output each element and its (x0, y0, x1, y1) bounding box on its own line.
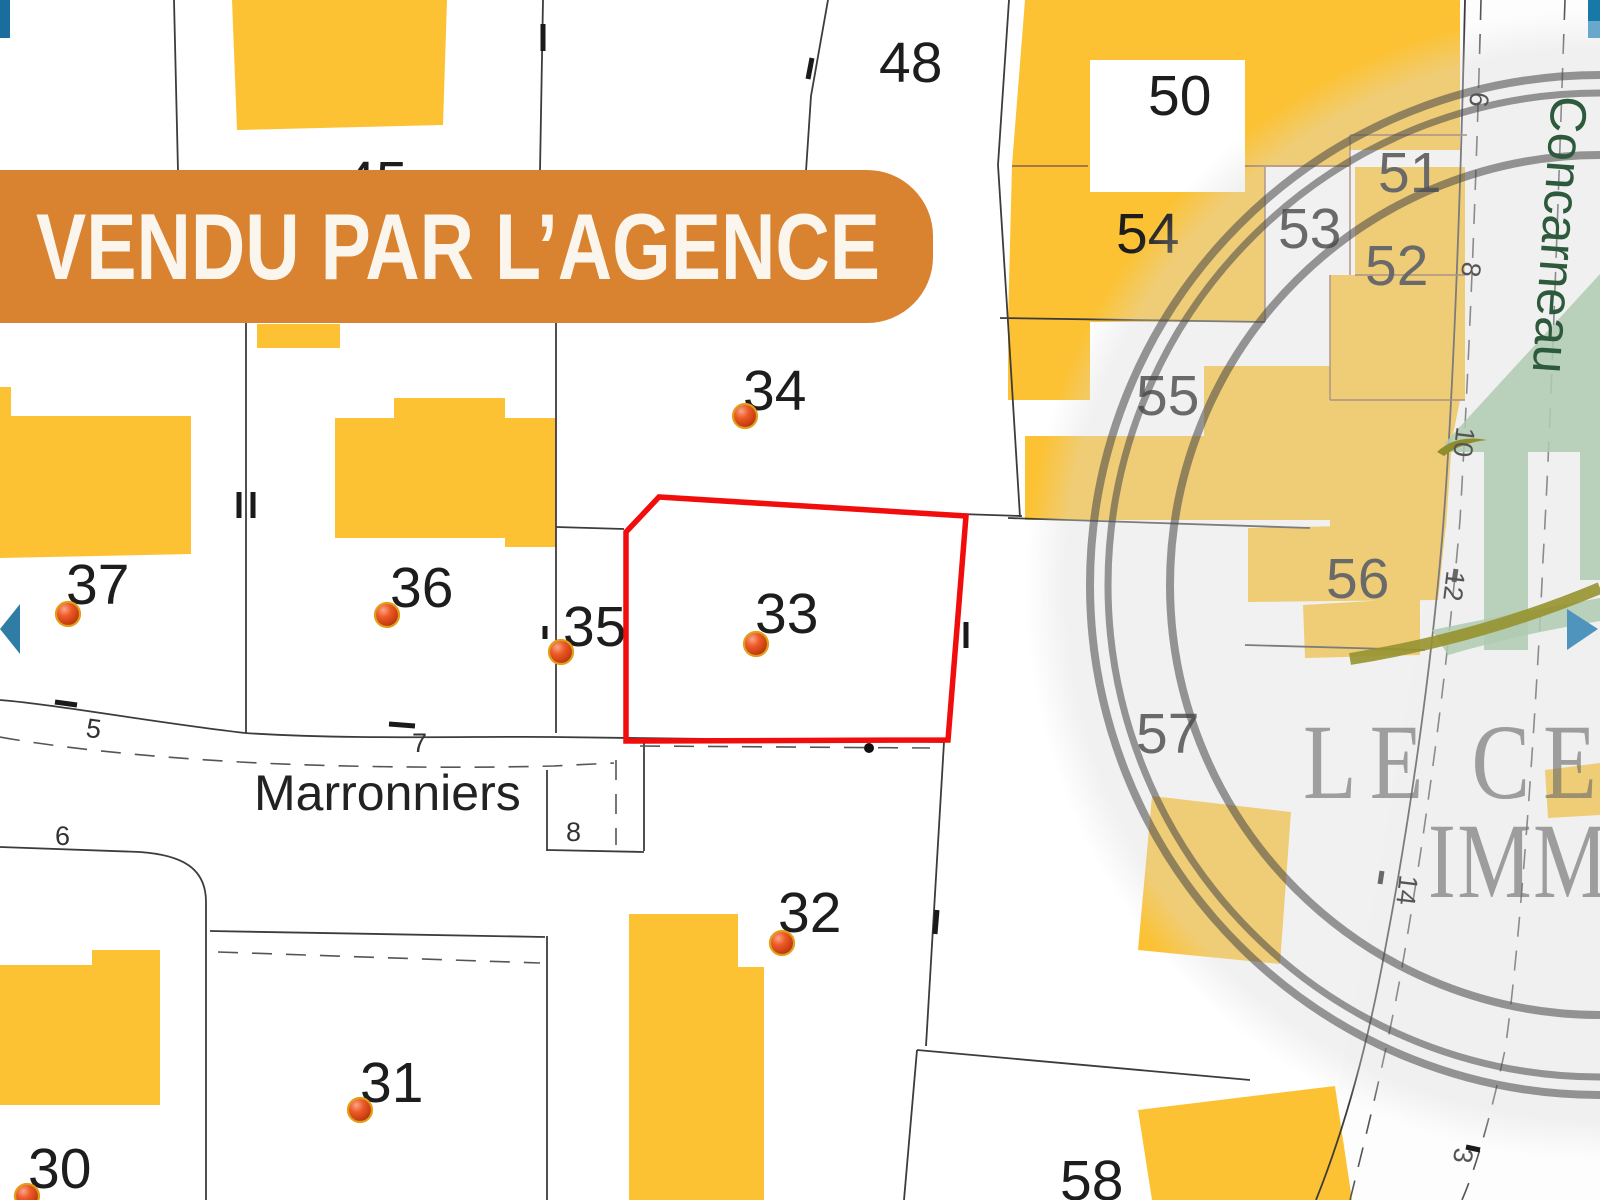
svg-text:10: 10 (1447, 425, 1480, 458)
svg-text:58: 58 (1060, 1149, 1123, 1200)
svg-text:48: 48 (879, 31, 942, 95)
svg-text:7: 7 (412, 728, 427, 758)
svg-text:IMM: IMM (1428, 801, 1600, 920)
svg-text:12: 12 (1437, 569, 1470, 602)
svg-text:VENDU PAR L’AGENCE: VENDU PAR L’AGENCE (36, 194, 880, 299)
svg-text:6: 6 (55, 821, 70, 851)
svg-text:36: 36 (390, 556, 453, 620)
svg-text:8: 8 (566, 817, 581, 847)
svg-text:Marronniers: Marronniers (254, 765, 521, 821)
svg-text:50: 50 (1148, 64, 1211, 128)
svg-text:14: 14 (1390, 873, 1423, 906)
